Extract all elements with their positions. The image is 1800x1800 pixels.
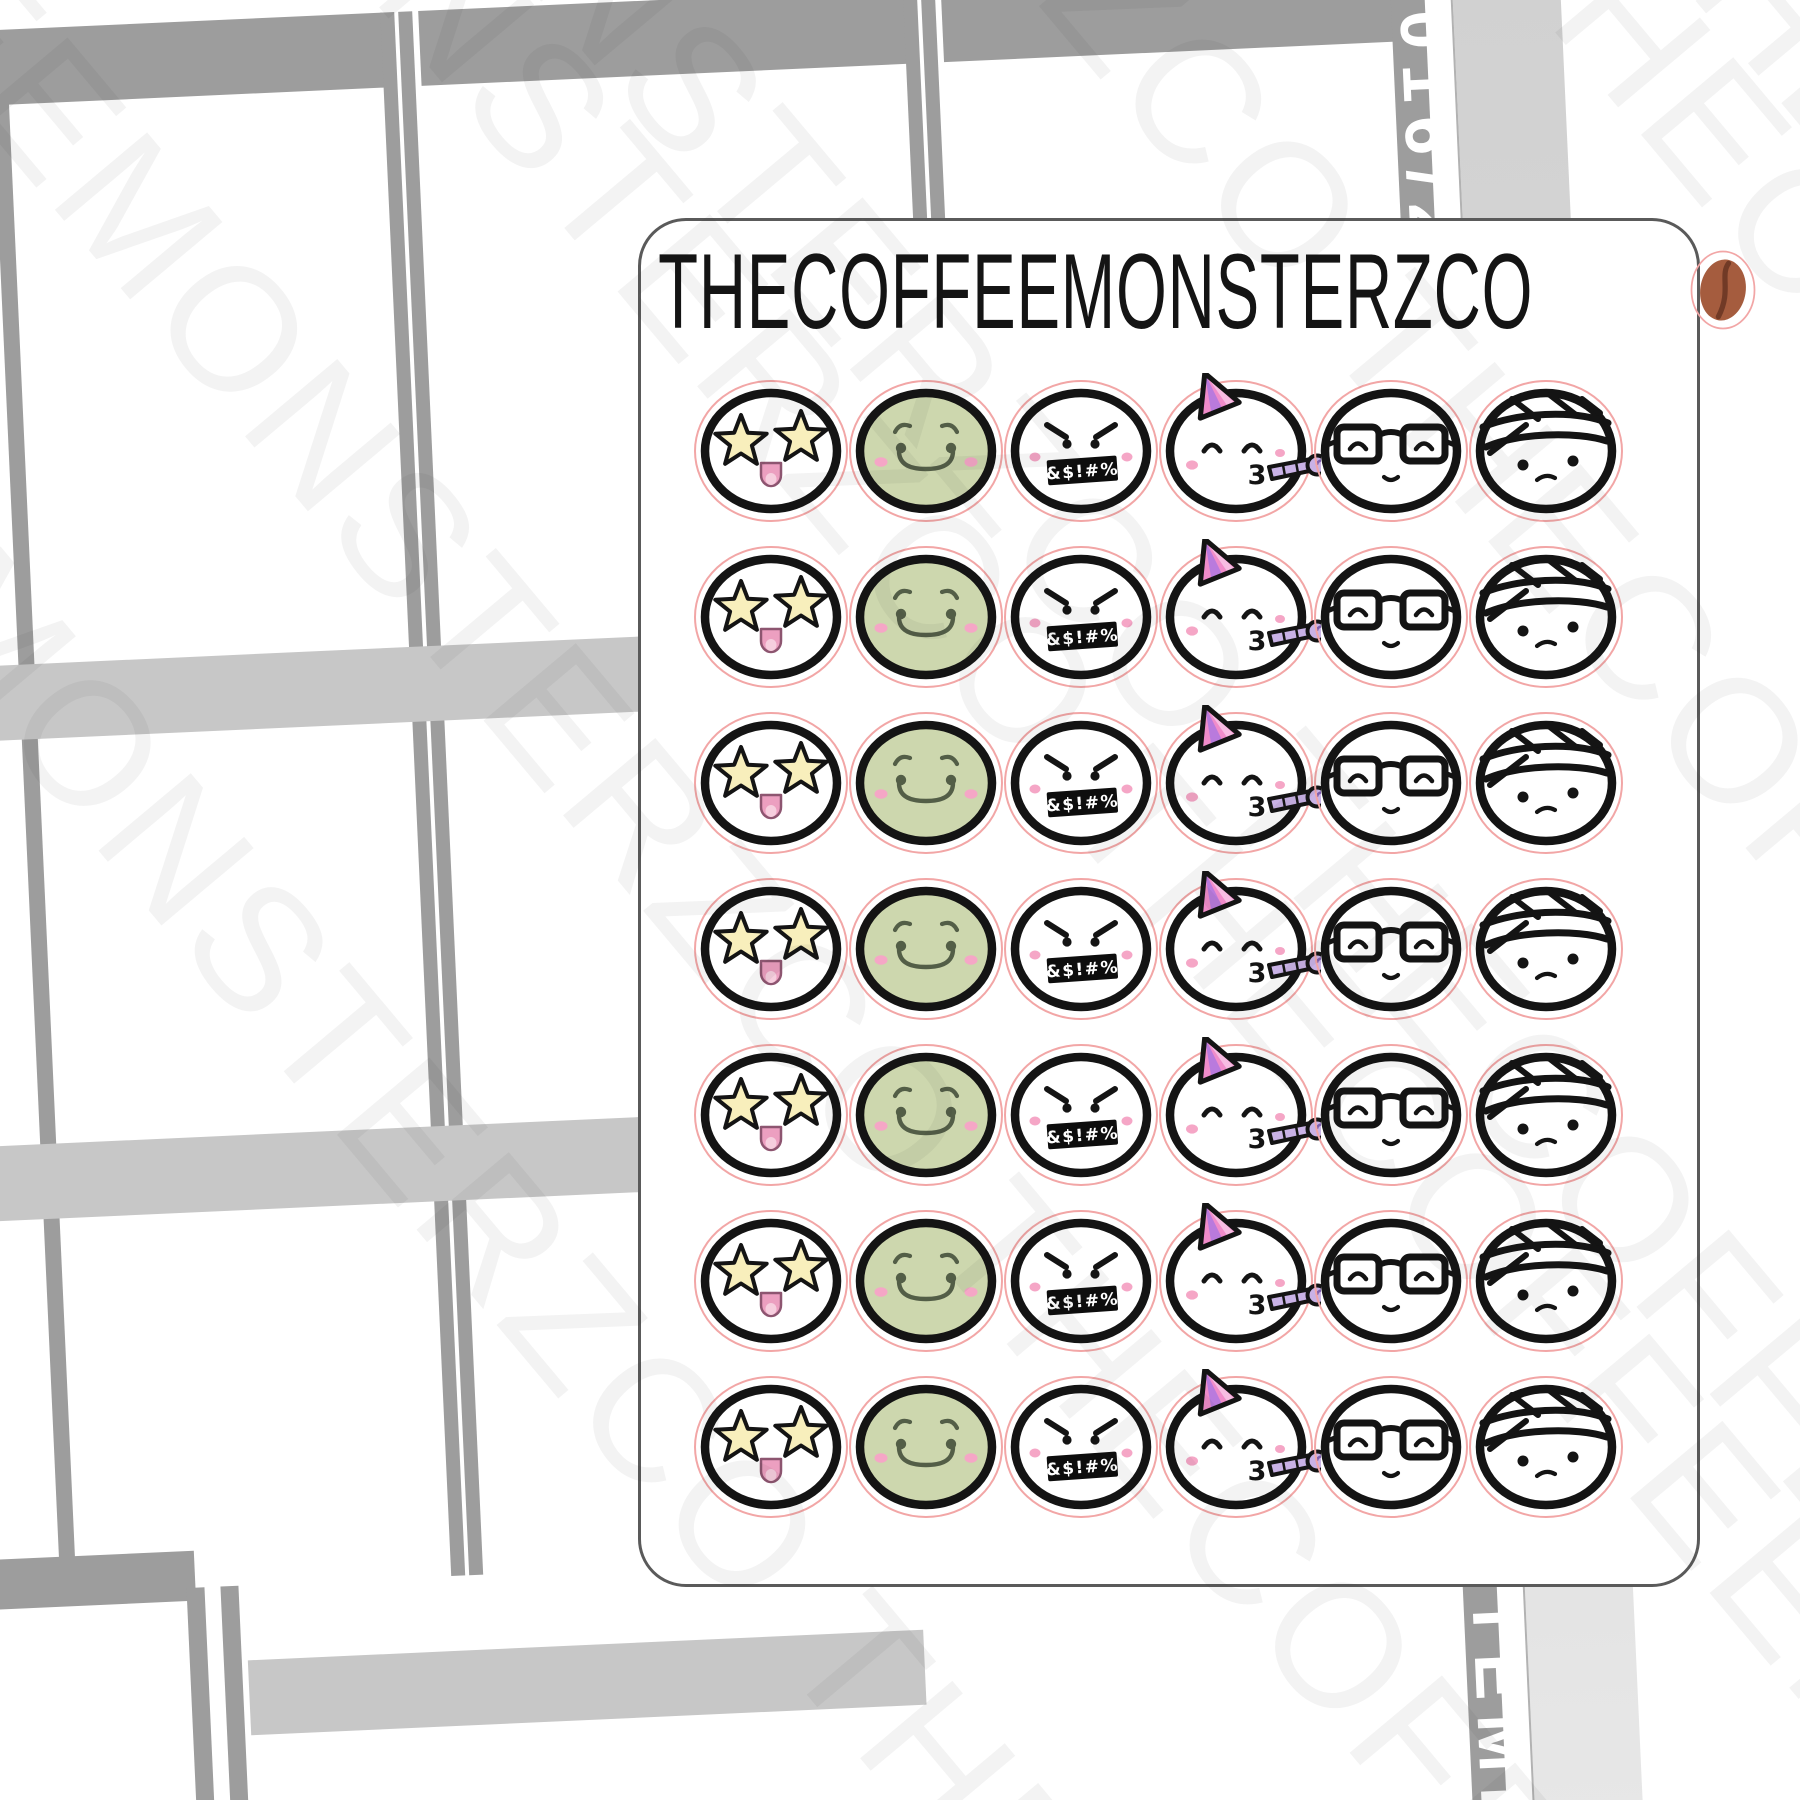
sticker-bandaged-head-face xyxy=(1461,1369,1631,1525)
sticker-nauseated-face xyxy=(841,1369,1011,1525)
svg-text:3: 3 xyxy=(1248,1290,1267,1321)
sticker-star-eyes-face xyxy=(686,539,856,695)
sticker-bandaged-head-face xyxy=(1461,539,1631,695)
sticker-nerd-glasses-face xyxy=(1306,373,1476,529)
sticker-bandaged-head-face xyxy=(1461,1203,1631,1359)
sticker-nerd-glasses-face xyxy=(1306,539,1476,695)
svg-text:3: 3 xyxy=(1248,1456,1267,1487)
svg-text:3: 3 xyxy=(1248,1124,1267,1155)
sticker-star-eyes-face xyxy=(686,1369,856,1525)
planner-left-rule xyxy=(0,95,75,1559)
sticker-party-face: 3 xyxy=(1151,373,1321,529)
planner-header-band xyxy=(941,0,1410,62)
sticker-party-face: 3 xyxy=(1151,1369,1321,1525)
sticker-nauseated-face xyxy=(841,1037,1011,1193)
sticker-party-face: 3 xyxy=(1151,539,1321,695)
brand-logo-text: THECOFFEEMONSTERZCO xyxy=(659,231,1534,354)
sticker-censored-swearing-face: &$!#% xyxy=(996,1037,1166,1193)
sticker-party-face: 3 xyxy=(1151,871,1321,1027)
sheet-header: THECOFFEEMONSTERZCO xyxy=(641,243,1697,342)
sticker-nauseated-face xyxy=(841,705,1011,861)
svg-text:3: 3 xyxy=(1248,460,1267,491)
sticker-party-face: 3 xyxy=(1151,705,1321,861)
sticker-nerd-glasses-face xyxy=(1306,1037,1476,1193)
sticker-nerd-glasses-face xyxy=(1306,1203,1476,1359)
sticker-sheet: THECOFFEEMONSTERZCO &$!#%3&$!#%3&$!#%3&$… xyxy=(638,218,1700,1587)
sticker-bandaged-head-face xyxy=(1461,871,1631,1027)
planner-header-band xyxy=(0,13,386,112)
svg-text:3: 3 xyxy=(1248,792,1267,823)
sticker-nerd-glasses-face xyxy=(1306,871,1476,1027)
planner-bottom-bar xyxy=(0,1551,196,1610)
sticker-censored-swearing-face: &$!#% xyxy=(996,1369,1166,1525)
sticker-nauseated-face xyxy=(841,1203,1011,1359)
product-photo-canvas: 2016/2 PTEMB THECOFFEEMONSTERZCO &$!#%3&… xyxy=(0,0,1800,1800)
sticker-nerd-glasses-face xyxy=(1306,1369,1476,1525)
planner-header-band xyxy=(418,0,908,86)
coffee-bean-icon xyxy=(1688,248,1758,337)
sticker-censored-swearing-face: &$!#% xyxy=(996,373,1166,529)
planner-row-band xyxy=(248,1630,927,1736)
sticker-censored-swearing-face: &$!#% xyxy=(996,539,1166,695)
sticker-party-face: 3 xyxy=(1151,1037,1321,1193)
sticker-party-face: 3 xyxy=(1151,1203,1321,1359)
sticker-bandaged-head-face xyxy=(1461,705,1631,861)
sticker-censored-swearing-face: &$!#% xyxy=(996,705,1166,861)
sticker-nauseated-face xyxy=(841,871,1011,1027)
sticker-bandaged-head-face xyxy=(1461,1037,1631,1193)
sticker-nauseated-face xyxy=(841,373,1011,529)
sticker-star-eyes-face xyxy=(686,871,856,1027)
sticker-star-eyes-face xyxy=(686,1203,856,1359)
sticker-nauseated-face xyxy=(841,539,1011,695)
svg-text:3: 3 xyxy=(1248,958,1267,989)
sticker-nerd-glasses-face xyxy=(1306,705,1476,861)
sticker-bandaged-head-face xyxy=(1461,373,1631,529)
sticker-star-eyes-face xyxy=(686,373,856,529)
sticker-censored-swearing-face: &$!#% xyxy=(996,1203,1166,1359)
sticker-censored-swearing-face: &$!#% xyxy=(996,871,1166,1027)
svg-text:3: 3 xyxy=(1248,626,1267,657)
sticker-star-eyes-face xyxy=(686,705,856,861)
sticker-star-eyes-face xyxy=(686,1037,856,1193)
